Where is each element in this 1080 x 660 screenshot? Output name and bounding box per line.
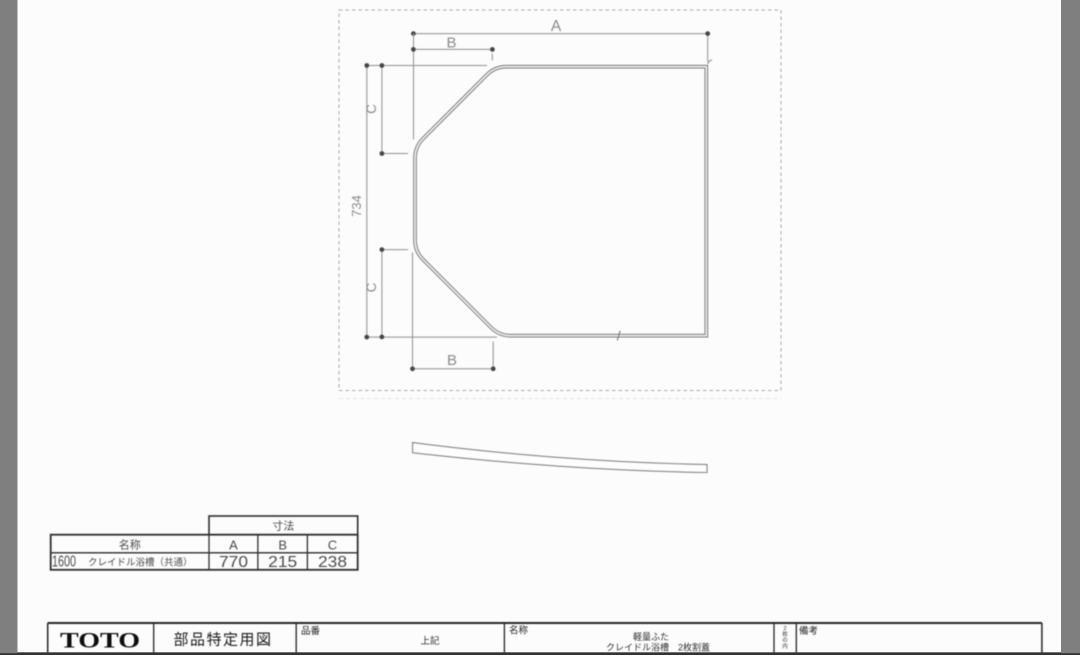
svg-text:TOTO: TOTO — [60, 628, 140, 653]
svg-text:枚: 枚 — [782, 630, 788, 638]
svg-text:B: B — [446, 35, 456, 52]
svg-text:クレイドル浴槽（共通）: クレイドル浴槽（共通） — [88, 557, 193, 569]
svg-text:215: 215 — [268, 554, 297, 571]
svg-text:内: 内 — [782, 642, 788, 650]
svg-text:B: B — [447, 352, 457, 369]
svg-text:軽量ふた: 軽量ふた — [633, 632, 669, 642]
svg-text:備考: 備考 — [799, 625, 818, 637]
svg-text:1600: 1600 — [52, 554, 76, 571]
svg-text:C: C — [364, 282, 379, 292]
svg-text:A: A — [229, 538, 238, 553]
svg-text:上記: 上記 — [420, 635, 440, 647]
svg-text:770: 770 — [219, 554, 248, 571]
svg-text:名称: 名称 — [119, 538, 141, 552]
svg-text:238: 238 — [318, 554, 347, 571]
svg-text:クレイドル浴槽 2枚割蓋: クレイドル浴槽 2枚割蓋 — [606, 642, 710, 653]
svg-text:寸法: 寸法 — [272, 519, 294, 533]
svg-text:C: C — [364, 104, 379, 114]
svg-text:の: の — [782, 637, 788, 644]
svg-text:名称: 名称 — [509, 625, 529, 637]
svg-text:B: B — [278, 538, 287, 553]
svg-text:C: C — [328, 538, 337, 553]
svg-text:品番: 品番 — [301, 625, 321, 637]
svg-text:734: 734 — [349, 195, 364, 217]
svg-text:A: A — [551, 18, 562, 35]
svg-text:部品特定用図: 部品特定用図 — [173, 632, 272, 649]
